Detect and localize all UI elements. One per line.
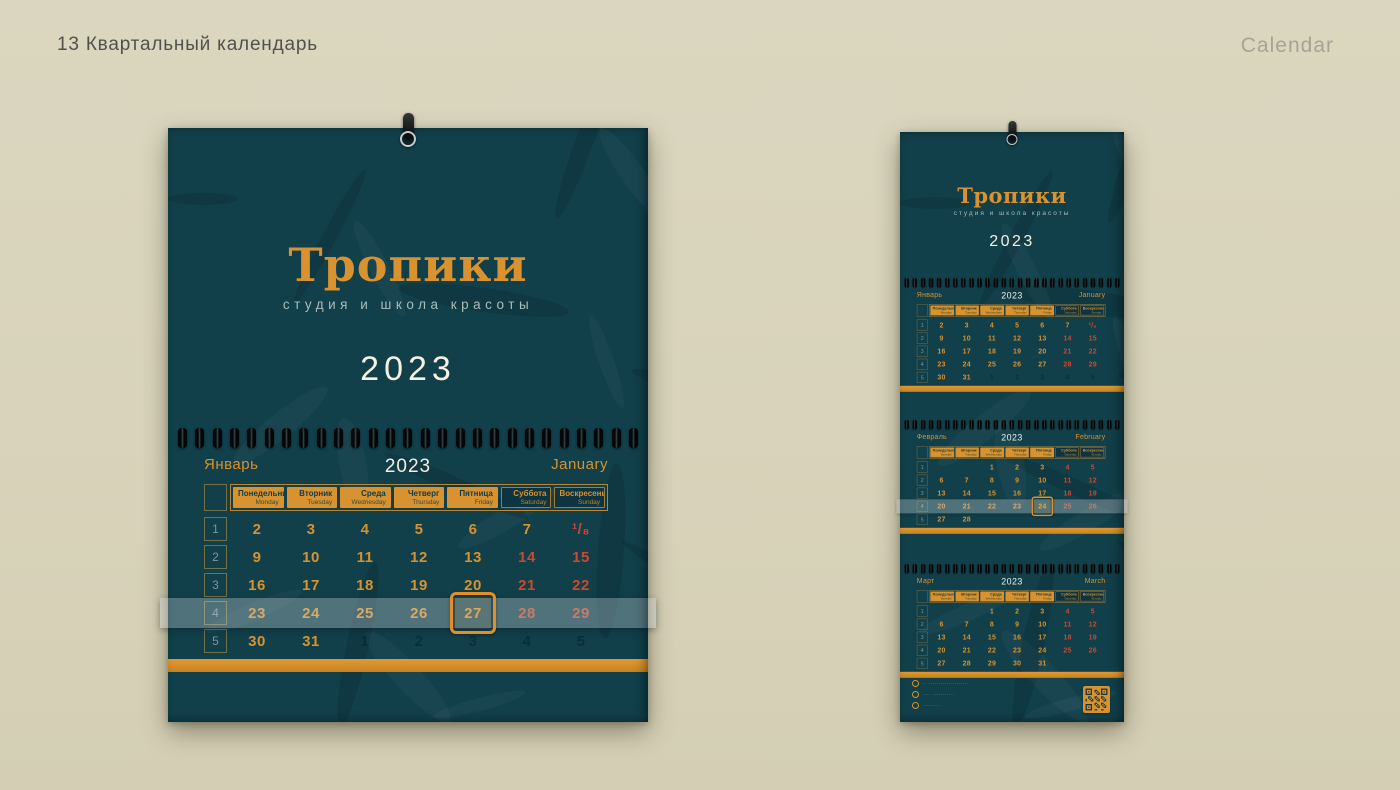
day-cell: 9 [230,543,284,571]
day-cell: 24 [1030,500,1055,513]
weekday-name-en: Sunday [1083,597,1102,601]
day-cell: 1 [979,461,1004,474]
day-number: 3 [1040,373,1044,381]
weekday-name-en: Monday [933,311,952,315]
cover-year: 2023 [900,233,1124,251]
day-cell: 31 [284,627,338,655]
spiral-coil [969,420,973,429]
contact-bullet-icon [912,680,919,687]
spiral-coil [969,278,973,287]
weekday-cell: ЧетвергThursday [1005,592,1029,602]
week-corner [204,484,227,511]
week-row: 52728293031 [917,657,1106,670]
day-number: 29 [988,659,996,667]
day-cell: 10 [954,332,979,345]
weekday-name-en: Wednesday [983,453,1002,457]
day-number: 5 [1091,607,1095,615]
weekday-name-ru: Среда [345,489,386,499]
day-cell: 4 [1055,605,1080,618]
spiral-coil [929,278,933,287]
weekday-name-ru: Воскресенье [559,489,600,499]
divider-bar [900,386,1124,392]
weekday-name-en: Sunday [1083,311,1102,315]
weekday-name-en: Wednesday [983,311,1002,315]
weekday-cell: ВторникTuesday [955,592,979,602]
day-cell: 2 [929,319,954,332]
day-cell: 27 [929,513,954,526]
day-cell: 24 [1030,644,1055,657]
day-cell: 2 [1005,371,1030,384]
day-number: 20 [937,646,945,654]
weekday-name-en: Tuesday [958,453,977,457]
day-number: 19 [1089,633,1097,641]
month-grid: ПонедельникMondayВторникTuesdayСредаWedn… [900,446,1124,526]
day-number: 12 [1089,476,1097,484]
day-number: 14 [963,633,971,641]
month-header: Февраль2023February [900,433,1124,443]
spiral-coil [1002,564,1006,573]
spiral-coil [1091,420,1095,429]
day-cell: 1 [979,605,1004,618]
day-number: 6 [939,476,943,484]
day-number: 6 [1040,321,1044,329]
date-slider-bar [160,598,656,628]
strip-january-mount: Январь2023JanuaryПонедельникMondayВторни… [900,278,1124,392]
day-number: 19 [1089,489,1097,497]
week-row: 29101112131415 [204,543,608,571]
week-number: 2 [917,475,928,486]
week-number: 5 [917,514,928,525]
day-cell: 16 [1005,487,1030,500]
spiral-coil [1115,564,1119,573]
day-cell: 6 [929,618,954,631]
day-number: 16 [1013,489,1021,497]
spiral-coil [961,278,965,287]
day-cell: 7 [954,618,979,631]
spiral-coil [1034,564,1038,573]
date-slider-bar [896,499,1127,513]
spiral-coil [334,428,343,448]
day-number: 13 [464,549,482,566]
spiral-coil [953,420,957,429]
spiral-coil [1010,420,1014,429]
spiral-coil [1002,278,1006,287]
day-number: 7 [965,476,969,484]
day-number: 1 [990,373,994,381]
day-cell: 7 [954,474,979,487]
calendar-mockup-strip: Тропики студия и школа красоты 2023 Янва… [900,132,1124,722]
weekday-cell: ВоскресеньеSunday [1080,592,1104,602]
week-row: 1234567¹/₈ [917,319,1106,332]
weekday-name-en: Saturday [506,499,547,507]
day-number: 9 [253,549,262,566]
day-cell: 25 [979,358,1004,371]
month-name-ru: Январь [917,291,942,299]
week-number: 3 [917,632,928,643]
weekday-name-en: Thursday [1008,311,1027,315]
day-cell: 18 [1055,631,1080,644]
week-number: 5 [917,658,928,669]
spiral-coil [913,278,917,287]
day-number: 2 [1015,463,1019,471]
day-number: 3 [1040,463,1044,471]
day-cell: 2 [230,515,284,543]
day-number: 3 [469,633,478,650]
weekday-name-en: Thursday [1008,453,1027,457]
day-number: 13 [1038,334,1046,342]
day-cell: 28 [954,513,979,526]
spiral-coil [1018,564,1022,573]
day-number: 4 [1065,607,1069,615]
day-number: 26 [1089,646,1097,654]
calendar-mockup-large: Тропики студия и школа красоты 2023 Янва… [168,128,648,722]
day-cell: 31 [1030,657,1055,670]
spiral-coil [369,428,378,448]
day-cell: ¹/₈ [554,515,608,543]
day-cell: 3 [284,515,338,543]
day-cell: 9 [1005,618,1030,631]
weekday-name-ru: Четверг [399,489,440,499]
day-cell: 5 [1005,319,1030,332]
day-number: 12 [1013,334,1021,342]
day-number: 4 [523,633,532,650]
spiral-coil [1010,278,1014,287]
weekday-cell: СубботаSaturday [1055,306,1079,316]
day-number: 30 [937,373,945,381]
spiral-coil [937,564,941,573]
brand-tagline: студия и школа красоты [900,210,1124,217]
day-cell: 5 [1080,371,1105,384]
day-number: 7 [1065,321,1069,329]
day-number: 19 [1013,347,1021,355]
day-cell: 25 [1055,644,1080,657]
day-cell: 5 [1080,461,1105,474]
month-name-ru: Январь [204,456,258,473]
week-corner [917,304,928,317]
week-number: 1 [917,462,928,473]
day-number: 8 [990,620,994,628]
day-number: 11 [1064,620,1072,628]
day-number: 12 [410,549,428,566]
day-number: 1 [361,633,370,650]
day-cell: 2 [1005,605,1030,618]
week-number: 2 [917,619,928,630]
weekday-cell: ПонедельникMonday [930,592,954,602]
day-cell: 18 [1055,487,1080,500]
day-number: 23 [1013,646,1021,654]
qr-code [1083,686,1110,713]
weekday-cell: СубботаSaturday [501,487,552,508]
week-row: 5303112345 [204,627,608,655]
weekday-cell: СредаWednesday [340,487,391,508]
day-number: 18 [988,347,996,355]
day-number: 17 [302,577,320,594]
day-number: 16 [248,577,266,594]
week-row: 26789101112 [917,474,1106,487]
day-number: 20 [1038,347,1046,355]
day-cell [979,513,1004,526]
spiral-coil [953,278,957,287]
week-row: 313141516171819 [917,631,1106,644]
day-cell: 13 [929,487,954,500]
day-number: 31 [1038,659,1046,667]
weekday-cell: СубботаSaturday [1055,448,1079,458]
week-row: 5303112345 [917,371,1106,384]
day-number: 21 [1063,347,1071,355]
day-number: 31 [963,373,971,381]
spiral-coil [1042,420,1046,429]
day-number: 6 [469,521,478,538]
day-cell: 27 [929,657,954,670]
day-number: 20 [464,577,482,594]
spiral-coil [1034,278,1038,287]
day-cell: 6 [446,515,500,543]
spiral-binding [168,428,648,448]
day-cell: 15 [1080,332,1105,345]
day-number: 11 [357,549,374,566]
strip-march-mount: Март2023MarchПонедельникMondayВторникTue… [900,564,1124,678]
day-number: 6 [939,620,943,628]
day-number: 13 [937,489,945,497]
spiral-coil [1091,564,1095,573]
spiral-coil [1042,564,1046,573]
day-cell: 5 [1080,605,1105,618]
day-number: 15 [1089,334,1097,342]
contact-text: ···· ··········· [923,692,955,697]
weekday-name-ru: Понедельник [238,489,279,499]
month-name-en: February [1075,433,1105,441]
day-number: 28 [1063,360,1071,368]
day-cell: 5 [392,515,446,543]
day-cell: 17 [954,345,979,358]
month-header: Январь2023January [168,456,648,478]
day-number: 15 [988,489,996,497]
brand-logo: Тропики [168,238,648,292]
day-cell: 29 [979,657,1004,670]
week-number: 3 [917,488,928,499]
spiral-coil [961,420,965,429]
day-cell: 4 [500,627,554,655]
spiral-coil [1050,278,1054,287]
day-cell: 30 [230,627,284,655]
day-cell: 4 [1055,371,1080,384]
day-number: 9 [939,334,943,342]
week-number: 1 [204,517,227,541]
week-number: 4 [917,359,928,370]
spiral-coil [905,420,909,429]
day-number: 24 [963,360,971,368]
weekday-name-en: Monday [933,597,952,601]
spiral-coil [1050,420,1054,429]
day-cell: 22 [554,571,608,599]
spiral-coil [386,428,395,448]
week-row: 1234567¹/₈ [204,515,608,543]
day-number: 16 [937,347,945,355]
day-cell: 21 [954,644,979,657]
day-number: 2 [253,521,262,538]
spiral-coil [945,278,949,287]
week-number: 1 [917,606,928,617]
day-number: 9 [1015,476,1019,484]
day-cell: 27 [1030,358,1055,371]
spiral-coil [542,428,551,448]
week-number: 1 [917,320,928,331]
day-cell: 22 [979,644,1004,657]
weekday-name-ru: Вторник [292,489,333,499]
spiral-coil [612,428,621,448]
weekday-cell: СредаWednesday [980,306,1004,316]
weekday-cell: СредаWednesday [980,448,1004,458]
spiral-coil [929,420,933,429]
day-cell: 10 [1030,474,1055,487]
day-cell: 9 [1005,474,1030,487]
spiral-coil [1050,564,1054,573]
spiral-coil [1115,278,1119,287]
day-number: 29 [1089,360,1097,368]
weekday-name-en: Friday [1033,311,1052,315]
day-number: 27 [937,515,945,523]
day-cell: 30 [1005,657,1030,670]
day-cell: 7 [1055,319,1080,332]
spiral-coil [403,428,412,448]
weekday-name-en: Friday [452,499,493,507]
day-cell: 15 [979,487,1004,500]
day-number: 2 [1015,373,1019,381]
spiral-binding [900,278,1124,287]
day-number: ¹/₈ [572,521,590,538]
spiral-coil [1067,278,1071,287]
month-grid: ПонедельникMondayВторникTuesdayСредаWedn… [900,304,1124,384]
day-number: 2 [415,633,424,650]
spiral-coil [1002,420,1006,429]
contact-bullet-icon [912,702,919,709]
day-cell: 16 [230,571,284,599]
week-row: 313141516171819 [917,487,1106,500]
spiral-coil [1107,278,1111,287]
day-number: 15 [572,549,590,566]
weekday-header: ПонедельникMondayВторникTuesdayСредаWedn… [230,484,608,511]
week-row: 112345 [917,605,1106,618]
week-row: 420212223242526 [917,500,1106,513]
weekday-cell: ЧетвергThursday [1005,448,1029,458]
day-cell: 3 [1030,605,1055,618]
day-cell: 19 [1080,631,1105,644]
weekday-name-en: Wednesday [983,597,1002,601]
day-cell: 14 [1055,332,1080,345]
week-row: 52728 [917,513,1106,526]
day-cell: 16 [929,345,954,358]
day-number: 24 [1038,646,1046,654]
day-number: 30 [1013,659,1021,667]
weekday-cell: ПонедельникMonday [930,306,954,316]
day-cell: 11 [979,332,1004,345]
weekday-name-ru: Пятница [452,489,493,499]
divider-bar [168,659,648,672]
day-cell: 31 [954,371,979,384]
day-number: 11 [988,334,996,342]
day-cell: 8 [979,618,1004,631]
day-number: 25 [988,360,996,368]
spiral-coil [438,428,447,448]
wall-hanger [1007,121,1018,145]
contact-text: ·· ···················· [923,681,969,686]
spiral-coil [456,428,465,448]
day-cell: 19 [392,571,446,599]
day-cell: 19 [1005,345,1030,358]
day-number: 14 [963,489,971,497]
spiral-coil [1058,278,1062,287]
spiral-coil [1042,278,1046,287]
day-cell: 2 [392,627,446,655]
day-number: 11 [1064,476,1072,484]
weekday-cell: ВторникTuesday [955,448,979,458]
day-number: 10 [963,334,971,342]
week-number: 4 [917,645,928,656]
spiral-coil [913,420,917,429]
day-number: 10 [1038,476,1046,484]
day-number: 27 [1038,360,1046,368]
day-cell: 12 [1080,474,1105,487]
week-number: 3 [917,346,928,357]
spiral-coil [1115,420,1119,429]
day-number: 21 [518,577,536,594]
month-block-february: Февраль2023FebruaryПонедельникMondayВтор… [900,420,1124,534]
day-cell: 14 [500,543,554,571]
day-cell: 28 [1055,358,1080,371]
day-number: 8 [990,476,994,484]
day-cell [929,461,954,474]
day-cell [1005,513,1030,526]
day-number: 7 [523,521,532,538]
spiral-coil [351,428,360,448]
january-month-block-mount: Январь2023JanuaryПонедельникMondayВторни… [168,428,648,672]
hanger-grommet [400,131,416,147]
spiral-coil [937,420,941,429]
cover-section: Тропики студия и школа красоты 2023 [900,132,1124,251]
day-cell: 29 [1080,358,1105,371]
day-number: 4 [990,321,994,329]
month-name-en: January [551,456,608,473]
weekday-name-en: Saturday [1058,597,1077,601]
spiral-coil [978,564,982,573]
day-number: 3 [965,321,969,329]
month-block-january: Январь2023JanuaryПонедельникMondayВторни… [900,278,1124,392]
weekday-cell: ВторникTuesday [955,306,979,316]
cover-section: Тропики студия и школа красоты 2023 [168,128,648,389]
spiral-coil [953,564,957,573]
day-number: 18 [1063,633,1071,641]
weekday-header: ПонедельникMondayВторникTuesdayСредаWedn… [929,590,1105,603]
day-number: 18 [1063,489,1071,497]
day-cell: 1 [979,371,1004,384]
spiral-coil [421,428,430,448]
day-cell: 10 [284,543,338,571]
day-cell: 3 [1030,371,1055,384]
day-cell: 11 [1055,474,1080,487]
spiral-coil [1067,564,1071,573]
day-number: ¹/₈ [1089,321,1097,329]
slide-title: 13 Квартальный календарь [57,34,318,56]
spiral-coil [1026,564,1030,573]
spiral-coil [473,428,482,448]
weekday-cell: ВоскресеньеSunday [1080,448,1104,458]
day-cell: 15 [554,543,608,571]
day-cell: 19 [1080,487,1105,500]
day-cell: 16 [1005,631,1030,644]
day-cell: 3 [1030,461,1055,474]
spiral-coil [230,428,239,448]
spiral-coil [265,428,274,448]
